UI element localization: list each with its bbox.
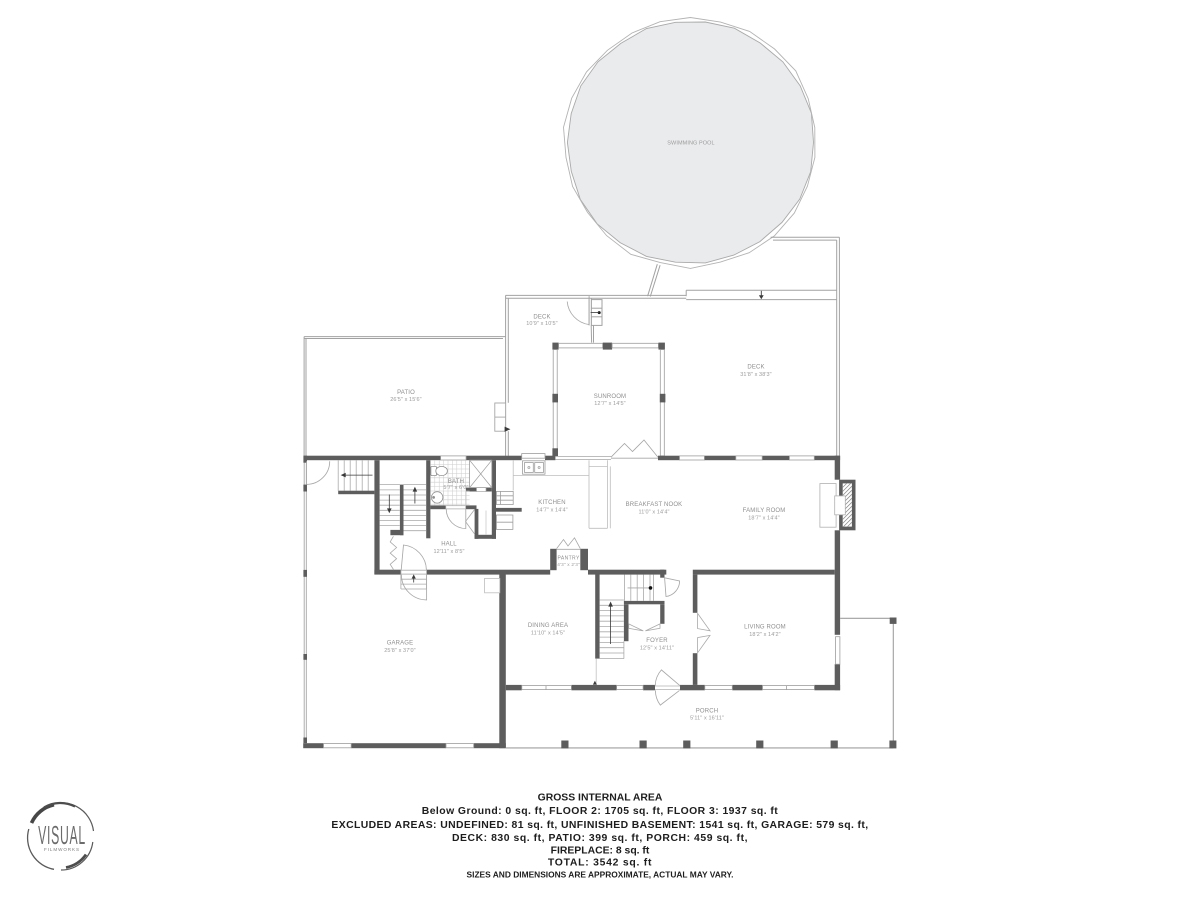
svg-text:DECK: DECK <box>533 315 550 321</box>
svg-text:SWIMMING POOL: SWIMMING POOL <box>667 141 714 147</box>
svg-text:PORCH: PORCH <box>696 709 718 715</box>
svg-text:DECK: DECK <box>747 365 764 371</box>
svg-text:GROSS INTERNAL AREA: GROSS INTERNAL AREA <box>538 793 663 804</box>
svg-text:26'5" x 15'6": 26'5" x 15'6" <box>390 397 421 403</box>
svg-text:FOYER: FOYER <box>646 638 668 644</box>
svg-text:FILMWORKS: FILMWORKS <box>44 847 80 852</box>
svg-text:HALL: HALL <box>441 542 457 548</box>
svg-text:11'10" x 14'5": 11'10" x 14'5" <box>531 631 565 637</box>
svg-text:BREAKFAST NOOK: BREAKFAST NOOK <box>626 502 683 508</box>
svg-text:PANTRY: PANTRY <box>557 556 579 562</box>
svg-text:GARAGE: GARAGE <box>387 641 414 647</box>
svg-text:14'7" x 14'4": 14'7" x 14'4" <box>536 508 567 514</box>
svg-text:DINING AREA: DINING AREA <box>528 623 568 629</box>
svg-text:KITCHEN: KITCHEN <box>538 500 565 506</box>
svg-text:11'0" x 14'4": 11'0" x 14'4" <box>638 510 669 516</box>
svg-text:12'7" x 14'5": 12'7" x 14'5" <box>594 401 625 407</box>
svg-text:Below Ground: 0 sq. ft, FLOOR: Below Ground: 0 sq. ft, FLOOR 2: 1705 sq… <box>422 806 779 817</box>
svg-text:31'8" x 38'3": 31'8" x 38'3" <box>740 372 771 378</box>
svg-text:DECK: 830 sq. ft, PATIO: 399 s: DECK: 830 sq. ft, PATIO: 399 sq. ft, POR… <box>452 833 748 844</box>
svg-text:TOTAL: 3542 sq. ft: TOTAL: 3542 sq. ft <box>548 857 652 868</box>
svg-text:10'9" x 10'5": 10'9" x 10'5" <box>526 321 557 327</box>
svg-text:5'11" x 16'11": 5'11" x 16'11" <box>690 716 724 722</box>
svg-text:12'11" x 8'5": 12'11" x 8'5" <box>433 549 464 555</box>
svg-text:PATIO: PATIO <box>397 390 415 396</box>
svg-text:18'7" x 14'4": 18'7" x 14'4" <box>748 516 779 522</box>
svg-text:18'2" x 14'2": 18'2" x 14'2" <box>749 632 780 638</box>
svg-text:SUNROOM: SUNROOM <box>594 394 626 400</box>
svg-text:5'7" x 6'0": 5'7" x 6'0" <box>443 485 468 491</box>
svg-text:EXCLUDED AREAS: UNDEFINED: 81: EXCLUDED AREAS: UNDEFINED: 81 sq. ft, UN… <box>331 820 868 831</box>
svg-text:LIVING ROOM: LIVING ROOM <box>744 625 786 631</box>
svg-text:FAMILY ROOM: FAMILY ROOM <box>743 508 786 514</box>
svg-text:FIREPLACE: 8 sq. ft: FIREPLACE: 8 sq. ft <box>551 846 650 857</box>
svg-text:12'5" x 14'11": 12'5" x 14'11" <box>640 646 674 652</box>
svg-text:4'3" x 2'3": 4'3" x 2'3" <box>557 562 580 567</box>
svg-text:SIZES AND DIMENSIONS ARE APPRO: SIZES AND DIMENSIONS ARE APPROXIMATE, AC… <box>467 870 734 880</box>
svg-text:25'8" x 37'0": 25'8" x 37'0" <box>384 648 415 654</box>
svg-text:BATH: BATH <box>448 479 464 485</box>
